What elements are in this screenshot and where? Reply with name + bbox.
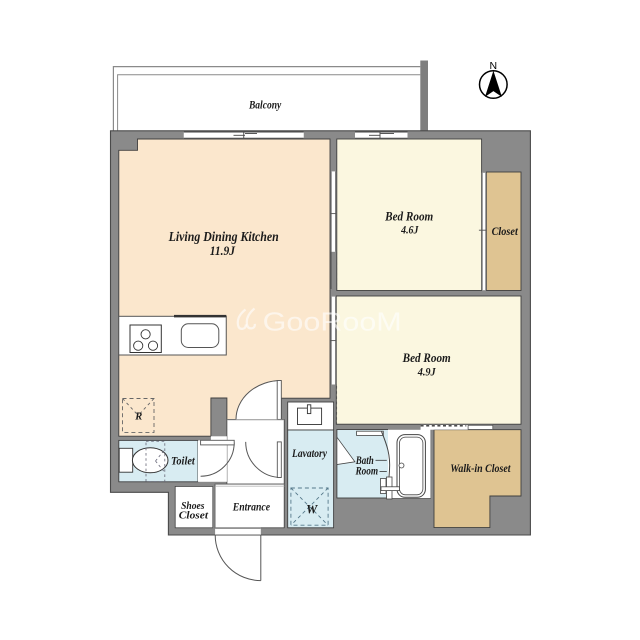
svg-text:Bed Room: Bed Room	[384, 209, 433, 224]
svg-text:Entrance: Entrance	[232, 499, 271, 513]
svg-text:4.6J: 4.6J	[400, 223, 419, 237]
svg-text:Balcony: Balcony	[248, 98, 282, 112]
svg-text:Toilet: Toilet	[171, 453, 195, 467]
svg-text:Closet: Closet	[492, 226, 519, 238]
svg-text:Bed Room: Bed Room	[402, 350, 451, 365]
svg-text:N: N	[490, 60, 498, 72]
svg-text:Living Dining Kitchen: Living Dining Kitchen	[168, 229, 279, 244]
svg-text:R: R	[134, 412, 142, 423]
svg-text:4.9J: 4.9J	[417, 365, 437, 379]
svg-text:11.9J: 11.9J	[210, 244, 236, 258]
svg-text:GooRooM: GooRooM	[263, 306, 402, 336]
svg-text:Lavatory: Lavatory	[291, 446, 327, 460]
svg-text:Closet: Closet	[179, 509, 209, 521]
svg-text:Room: Room	[355, 465, 379, 477]
svg-text:W: W	[306, 503, 318, 517]
svg-text:Walk-in Closet: Walk-in Closet	[450, 461, 511, 475]
